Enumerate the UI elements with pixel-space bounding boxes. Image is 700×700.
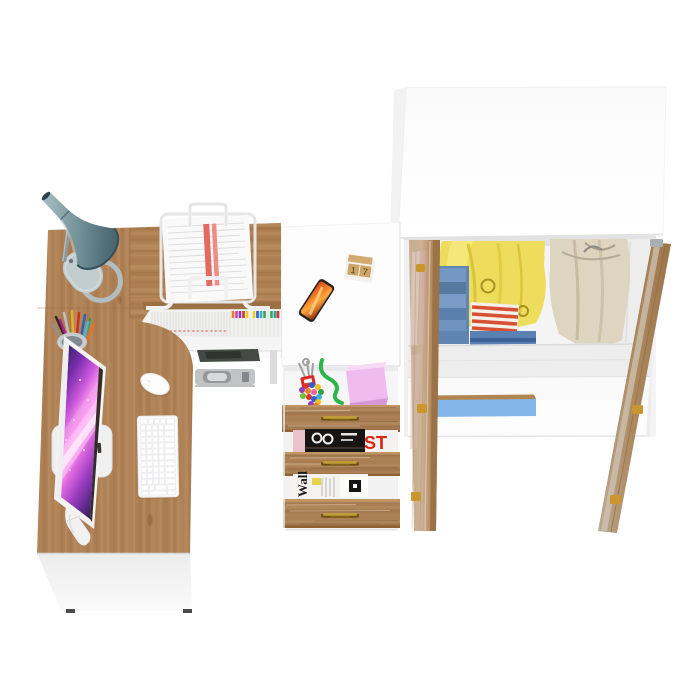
svg-text:ST: ST bbox=[364, 433, 387, 453]
svg-text:Wall: Wall bbox=[295, 471, 310, 497]
